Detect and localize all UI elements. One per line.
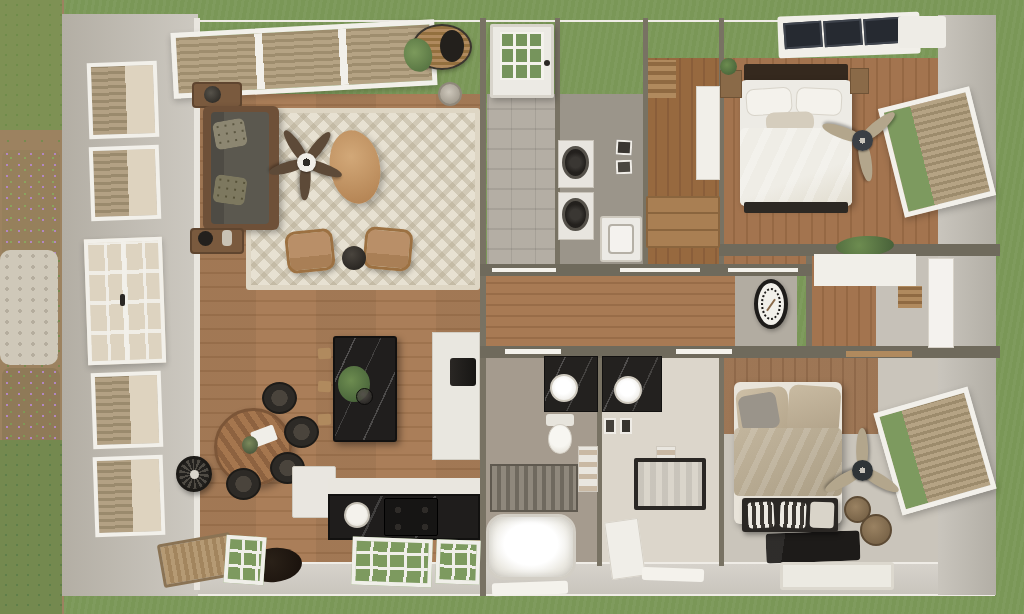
bath1-mat (492, 581, 568, 597)
bar-stool-2 (318, 381, 331, 392)
hall-light-strip-2 (620, 268, 700, 272)
chair-side-sphere-decor (342, 246, 366, 270)
wall-living-divider (480, 18, 486, 596)
bench-cushion-striped-2 (779, 501, 806, 528)
window-kitchen-1 (223, 535, 266, 586)
laundry-art-2 (616, 160, 632, 175)
pouf-large (860, 514, 892, 546)
laundry-freezer-lid (608, 224, 634, 254)
kitchen-stove (384, 498, 438, 536)
bath1-shower-floor (490, 464, 578, 512)
bed2-pillow-gray (737, 391, 781, 433)
bath2-art-1 (604, 418, 616, 434)
bath1-toilet-bowl (548, 424, 572, 454)
closet2-threshold-wood (846, 351, 912, 357)
french-door-left (84, 237, 166, 366)
ceiling-fan-bedroom2 (820, 428, 904, 512)
floor-entry-tile (487, 94, 557, 270)
bed1-nightstand-right (850, 68, 869, 94)
window-left-4 (93, 455, 166, 537)
floorplan-stage (0, 0, 1024, 614)
ceiling-fan-bedroom2-hub (852, 460, 873, 481)
bedroom1-skylight-pane-3 (863, 17, 903, 46)
ceiling-fan-bedroom1 (820, 98, 904, 182)
bench-cushion-striped-1 (747, 501, 774, 528)
pantry-door-panel (696, 86, 720, 180)
accent-chair-right (362, 226, 413, 272)
entry-door-knob (544, 60, 550, 66)
bed2-dark-rug (766, 530, 861, 563)
bath1-sink (550, 374, 578, 402)
dining-chair-north (262, 382, 297, 414)
window-kitchen-3 (435, 539, 481, 585)
bed1-nightstand-plant (720, 58, 737, 75)
side-table-vase (222, 230, 232, 246)
kitchen-wall-counter (432, 332, 480, 460)
window-left-2 (89, 145, 162, 221)
garden-left-shrubs-top (0, 0, 62, 130)
kitchen-coffee-machine (450, 358, 476, 386)
bar-stool-3 (318, 414, 331, 425)
ceiling-fan-bedroom1-hub (852, 130, 873, 151)
ceiling-fan-living (268, 124, 344, 200)
bedroom1-skylight-pane-2 (823, 19, 863, 48)
sofa-lamp-top (204, 86, 221, 103)
side-table-decor-sphere (198, 231, 213, 246)
dining-centerpiece (242, 436, 258, 454)
bath2-sink (614, 376, 642, 404)
island-pendant-light (356, 388, 373, 405)
kitchen-sink (344, 502, 370, 528)
hall-light-strip-1 (492, 268, 556, 272)
sofa-pillow-top (212, 117, 248, 150)
window-left-3 (91, 371, 164, 449)
window-kitchen-2 (351, 537, 433, 588)
dining-chair-east (284, 416, 319, 448)
floor-lamp (438, 82, 462, 106)
floor-hallway (483, 274, 735, 348)
hall-light-strip-3 (728, 268, 798, 272)
window-left-1 (87, 61, 160, 139)
ceiling-fan-living-hub (297, 153, 316, 172)
washer-drum (562, 146, 589, 179)
dining-chair-south (226, 468, 261, 500)
dining-fan-hub (190, 470, 199, 479)
garden-left-rocks (0, 250, 58, 365)
pantry-dresser (646, 196, 720, 248)
laundry-art-1 (616, 140, 633, 156)
bath1-shelf-niche (578, 446, 598, 492)
accent-chair-left (284, 228, 336, 275)
french-door-handles (120, 294, 125, 306)
hall-threshold-2 (676, 349, 732, 354)
pantry-shelf-slats (648, 60, 676, 98)
bath2-art-2 (620, 418, 632, 434)
bed1-foot-bench (744, 202, 848, 213)
bath1-bathtub (486, 514, 576, 580)
wall-bath2-bedroom2 (719, 354, 724, 566)
bath2-shower-pan (634, 458, 706, 510)
entry-door-glass (500, 32, 544, 80)
bath2-mat (642, 567, 704, 582)
closet2-ceiling-panel (814, 254, 916, 286)
hvac-unit-corner (898, 16, 946, 48)
garden-left-flowers-1 (2, 150, 60, 260)
plant-stand-decor (440, 30, 464, 62)
dryer-drum (562, 198, 589, 231)
closet2-door-panel (928, 258, 954, 348)
closet2-shelf-slats (898, 286, 922, 308)
garden-left-shrubs-bottom (0, 440, 62, 614)
bedroom1-skylight-pane-1 (783, 21, 823, 50)
hall-threshold-1 (505, 349, 561, 354)
sofa-pillow-bottom (212, 174, 248, 206)
bed2-floor-mat (780, 562, 894, 590)
bar-stool-1 (318, 348, 332, 360)
